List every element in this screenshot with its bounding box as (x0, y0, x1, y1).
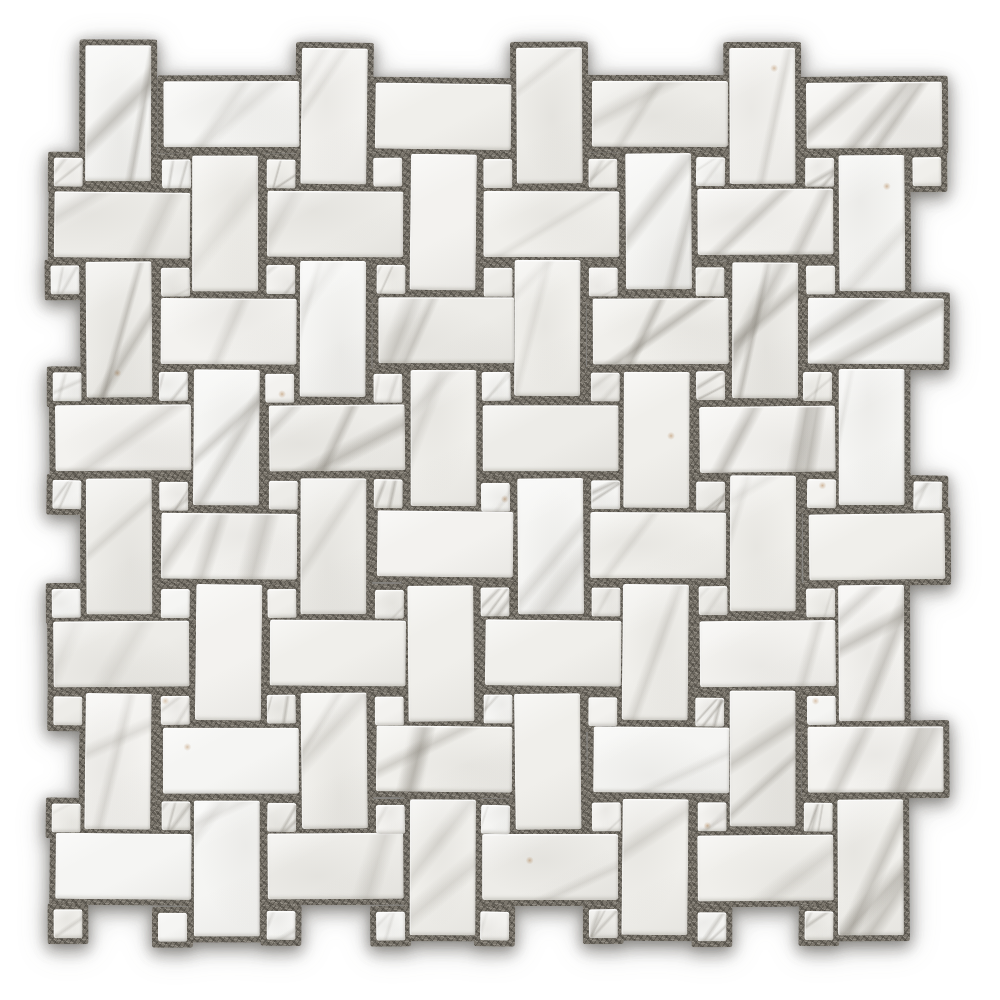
marble-tile-dot (805, 588, 834, 617)
marble-tile-vertical-rect (300, 261, 367, 397)
marble-tile-horizontal-rect (593, 726, 730, 793)
marble-tile-vertical-rect (85, 261, 152, 398)
marble-tile-dot (803, 803, 832, 832)
marble-tile-dot (266, 265, 295, 294)
marble-tile-dot (699, 586, 728, 615)
marble-tile-horizontal-rect (270, 619, 406, 686)
marble-tile-dot (588, 267, 617, 296)
marble-tile-horizontal-rect (808, 513, 945, 580)
marble-tile-horizontal-rect (162, 728, 298, 794)
marble-tile-horizontal-rect (163, 81, 299, 147)
marble-tile-dot (373, 158, 402, 187)
marble-tile-horizontal-rect (53, 620, 189, 687)
marble-tile-dot (267, 694, 296, 723)
marble-tile-dot (482, 372, 511, 401)
marble-tile-horizontal-rect (160, 298, 296, 365)
marble-tile-vertical-rect (621, 583, 688, 720)
marble-tile-dot (54, 157, 83, 186)
marble-tile-horizontal-rect (699, 619, 836, 686)
marble-tile-dot (590, 372, 619, 401)
marble-tile-horizontal-rect (485, 619, 622, 687)
marble-tile-dot (804, 910, 833, 939)
marble-tile-dot (267, 910, 296, 939)
marble-tile-horizontal-rect (376, 510, 513, 578)
marble-tile-vertical-rect (84, 693, 152, 830)
marble-tile-dot (696, 371, 725, 400)
marble-tile-horizontal-rect (483, 405, 619, 471)
marble-tile-dot (161, 159, 190, 188)
marble-tile-dot (52, 589, 81, 618)
marble-tile-horizontal-rect (592, 298, 728, 365)
marble-tile-dot (159, 481, 188, 510)
marble-tile-dot (695, 267, 724, 296)
marble-tile-horizontal-rect (807, 726, 943, 793)
marble-tile-horizontal-rect (375, 725, 512, 792)
marble-tile-dot (161, 801, 190, 830)
marble-tile-dot (267, 589, 296, 618)
marble-tile-dot (483, 159, 512, 188)
marble-tile-vertical-rect (516, 47, 583, 183)
marble-tile-dot (267, 803, 296, 832)
marble-tile-vertical-rect (192, 369, 259, 505)
marble-tile-vertical-rect (732, 262, 798, 398)
marble-tile-vertical-rect (730, 691, 796, 827)
marble-tile-dot (265, 374, 294, 403)
marble-tile-dot (805, 158, 834, 187)
marble-tile-vertical-rect (625, 153, 692, 289)
marble-tile-dot (588, 697, 617, 726)
marble-tile-vertical-rect (194, 584, 261, 721)
marble-tile-dot (267, 159, 296, 188)
marble-tile-horizontal-rect (591, 81, 727, 147)
marble-tile-horizontal-rect (378, 297, 514, 363)
marble-tile-dot (373, 479, 402, 508)
marble-tile-horizontal-rect (160, 513, 297, 580)
marble-tile-dot (269, 480, 298, 509)
marble-tile-dot (483, 694, 512, 723)
marble-tile-dot (697, 912, 726, 941)
marble-tile-dot (484, 267, 513, 296)
marble-tile-dot (52, 479, 81, 508)
marble-tile-dot (480, 587, 509, 616)
product-photo-canvas (0, 0, 1000, 1000)
marble-tile-dot (698, 802, 727, 831)
marble-tile-horizontal-rect (267, 190, 403, 257)
marble-tile-horizontal-rect (55, 832, 192, 899)
marble-tile-horizontal-rect (482, 833, 618, 899)
marble-tile-horizontal-rect (807, 298, 943, 365)
marble-tile-dot (53, 372, 82, 401)
marble-tile-dot (591, 802, 620, 831)
marble-tile-horizontal-rect (699, 405, 836, 472)
marble-tile-dot (802, 372, 831, 401)
marble-tile-horizontal-rect (54, 191, 191, 259)
marble-tile-dot (160, 589, 189, 618)
marble-tile-dot (160, 267, 189, 296)
marble-tile-dot (158, 372, 187, 401)
marble-tile-vertical-rect (85, 45, 151, 181)
marble-tile-dot (591, 587, 620, 616)
marble-tile-vertical-rect (193, 800, 259, 936)
marble-tile-vertical-rect (407, 585, 474, 722)
marble-tile-dot (696, 157, 725, 186)
marble-tile-vertical-rect (409, 153, 477, 290)
marble-tile-dot (806, 695, 835, 724)
marble-tile-vertical-rect (730, 475, 796, 611)
marble-tile-dot (912, 157, 941, 186)
marble-tile-dot (51, 803, 80, 832)
marble-tile-dot (375, 911, 404, 940)
marble-tile-dot (695, 697, 724, 726)
marble-tile-vertical-rect (837, 799, 904, 935)
marble-tile-dot (591, 480, 620, 509)
marble-tile-vertical-rect (410, 369, 476, 505)
marble-tile-vertical-rect (623, 371, 690, 507)
marble-tile-vertical-rect (838, 584, 905, 720)
marble-tile-vertical-rect (729, 48, 795, 184)
marble-tile-dot (480, 911, 509, 940)
marble-tile-dot (53, 696, 82, 725)
marble-tile-horizontal-rect (483, 191, 619, 257)
marble-tile-dot (376, 264, 405, 293)
marble-tile-horizontal-rect (267, 832, 403, 899)
marble-tile-dot (50, 265, 79, 294)
marble-tile-dot (53, 909, 82, 938)
marble-tile-dot (374, 590, 403, 619)
marble-tile-vertical-rect (517, 478, 584, 614)
marble-tile-dot (696, 481, 725, 510)
marble-tile-vertical-rect (514, 260, 581, 396)
marble-tile-dot (806, 479, 835, 508)
marble-tile-vertical-rect (409, 799, 476, 935)
marble-tile-dot (805, 265, 834, 294)
marble-tile-vertical-rect (300, 692, 367, 829)
marble-tile-dot (913, 481, 942, 510)
marble-tile-vertical-rect (621, 798, 688, 935)
marble-tile-vertical-rect (838, 368, 904, 504)
marble-tile-vertical-rect (838, 154, 905, 290)
marble-tile-dot (374, 696, 403, 725)
marble-tile-horizontal-rect (374, 83, 511, 151)
mosaic-sheet (0, 0, 1000, 1000)
marble-tile-horizontal-rect (269, 404, 406, 471)
marble-tile-horizontal-rect (805, 81, 942, 148)
marble-tile-dot (588, 909, 617, 938)
marble-tile-dot (373, 374, 402, 403)
marble-tile-horizontal-rect (697, 834, 833, 901)
marble-tile-vertical-rect (86, 478, 153, 614)
marble-tile-dot (481, 482, 510, 511)
marble-tile-vertical-rect (514, 693, 582, 830)
marble-tile-dot (160, 695, 189, 724)
marble-tile-vertical-rect (300, 478, 366, 614)
marble-tile-dot (481, 805, 510, 834)
marble-tile-dot (588, 159, 617, 188)
tile-layer (0, 0, 1000, 1000)
marble-tile-vertical-rect (192, 155, 258, 291)
marble-tile-dot (375, 805, 404, 834)
marble-tile-dot (157, 912, 186, 941)
marble-tile-horizontal-rect (697, 188, 833, 255)
marble-tile-horizontal-rect (590, 512, 726, 578)
marble-tile-horizontal-rect (55, 404, 191, 471)
marble-tile-vertical-rect (300, 48, 368, 185)
